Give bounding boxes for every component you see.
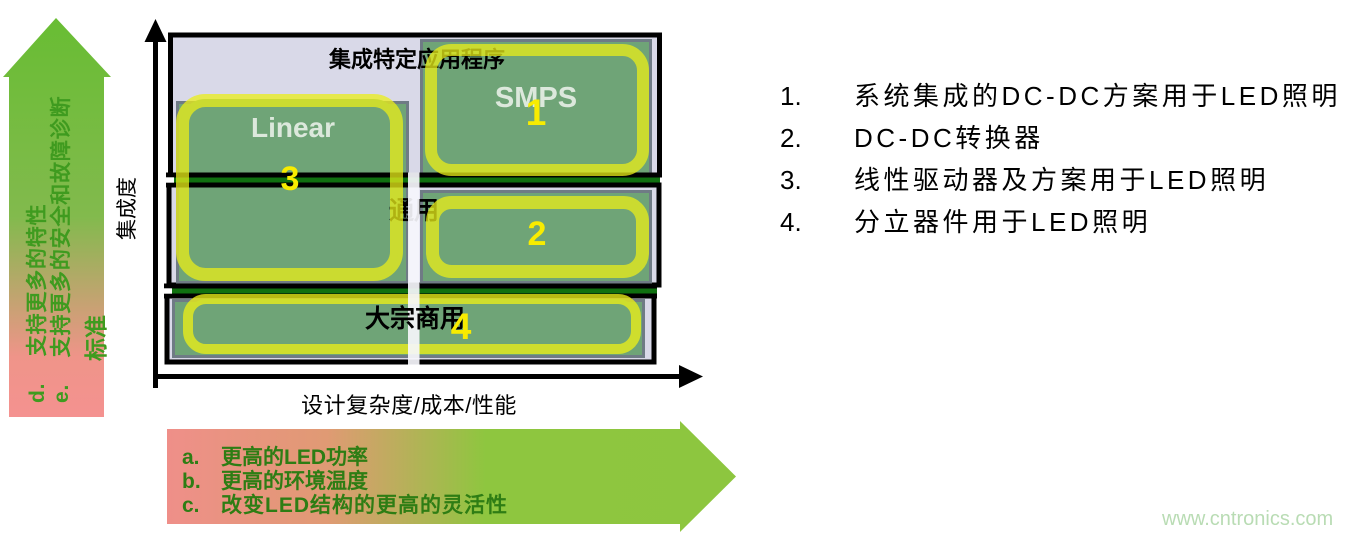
svg-text:www.cntronics.com: www.cntronics.com bbox=[1161, 508, 1333, 530]
svg-text:更高的LED功率: 更高的LED功率 bbox=[221, 445, 368, 469]
svg-text:c.: c. bbox=[182, 494, 200, 517]
svg-text:3: 3 bbox=[281, 160, 300, 198]
svg-text:4.: 4. bbox=[780, 207, 802, 237]
svg-text:3.: 3. bbox=[780, 165, 802, 195]
svg-text:标准: 标准 bbox=[83, 315, 109, 361]
svg-text:1.: 1. bbox=[780, 81, 802, 111]
svg-text:设计复杂度/成本/性能: 设计复杂度/成本/性能 bbox=[301, 393, 517, 418]
svg-text:线性驱动器及方案用于LED照明: 线性驱动器及方案用于LED照明 bbox=[854, 165, 1269, 195]
svg-text:Linear: Linear bbox=[251, 112, 335, 143]
svg-text:DC-DC转换器: DC-DC转换器 bbox=[854, 123, 1044, 153]
svg-text:e. 支持更多的安全和故障诊断: e. 支持更多的安全和故障诊断 bbox=[49, 96, 73, 403]
svg-text:4: 4 bbox=[451, 306, 472, 347]
svg-text:改变LED结构的更高的灵活性: 改变LED结构的更高的灵活性 bbox=[221, 493, 508, 517]
svg-text:系统集成的DC-DC方案用于LED照明: 系统集成的DC-DC方案用于LED照明 bbox=[854, 81, 1341, 111]
svg-text:分立器件用于LED照明: 分立器件用于LED照明 bbox=[854, 207, 1151, 237]
svg-text:a.: a. bbox=[182, 446, 200, 469]
svg-text:b.: b. bbox=[182, 470, 201, 493]
svg-text:更高的环境温度: 更高的环境温度 bbox=[221, 469, 368, 493]
svg-text:2: 2 bbox=[528, 215, 547, 253]
svg-text:1: 1 bbox=[526, 92, 547, 133]
svg-text:d. 支持更多的特性: d. 支持更多的特性 bbox=[25, 204, 49, 403]
svg-text:集成度: 集成度 bbox=[116, 177, 139, 240]
svg-text:2.: 2. bbox=[780, 123, 802, 153]
